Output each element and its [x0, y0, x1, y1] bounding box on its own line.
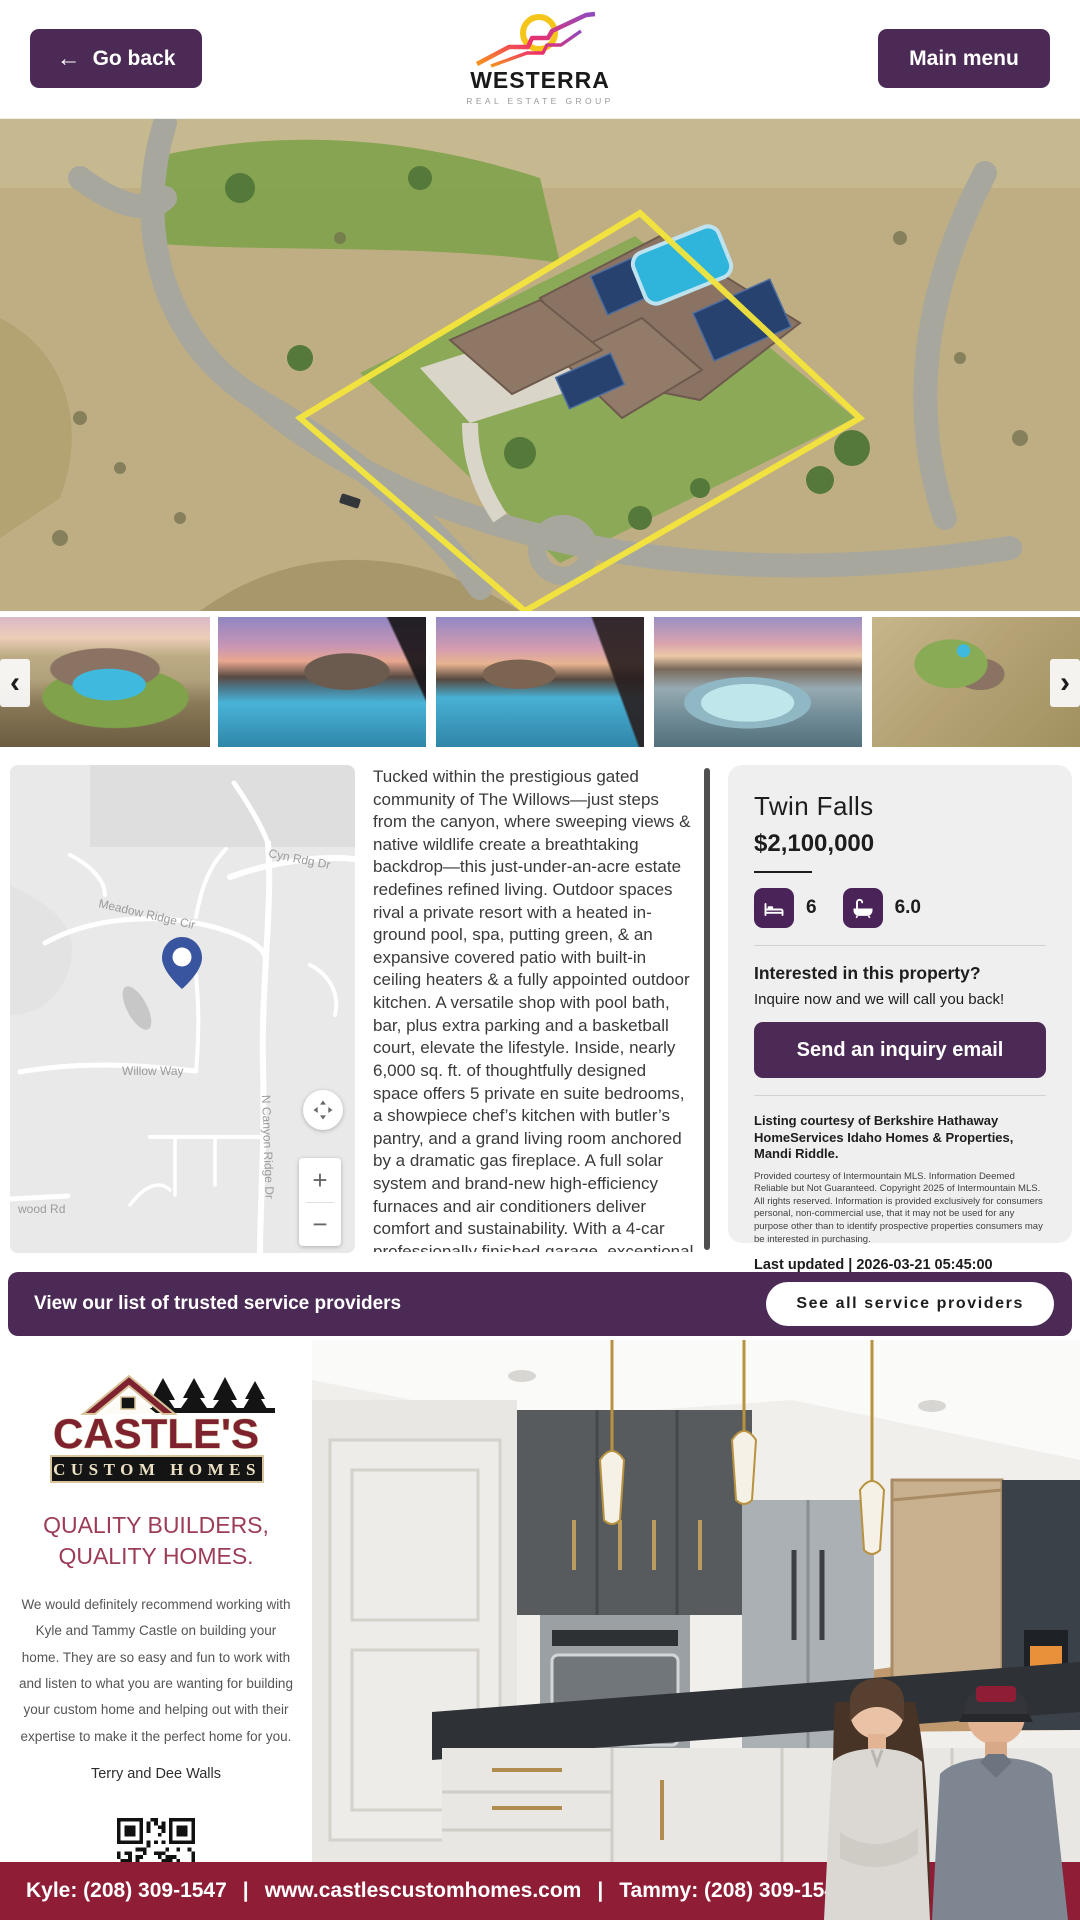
man-figure: [932, 1686, 1068, 1920]
thumbnail-5[interactable]: [872, 617, 1080, 747]
property-info-card: Twin Falls $2,100,000 6 6.0 Interested i…: [728, 765, 1072, 1243]
sponsor-left-column: CASTLE'S CUSTOM HOMES QUALITY BUILDERS, …: [0, 1340, 312, 1862]
see-all-service-providers-button[interactable]: See all service providers: [766, 1282, 1054, 1326]
carousel-prev-button[interactable]: ‹: [0, 659, 30, 707]
street-label-wood-rd: wood Rd: [17, 1202, 65, 1216]
header: ← Go back WESTERRA REAL ESTATE GROUP Mai…: [0, 0, 1080, 119]
tagline-line-1: QUALITY BUILDERS,: [0, 1510, 312, 1541]
property-price: $2,100,000: [754, 830, 1046, 858]
map-zoom-control: + −: [299, 1158, 341, 1246]
listing-courtesy: Listing courtesy of Berkshire Hathaway H…: [754, 1113, 1046, 1163]
main-property-photo: [0, 118, 1080, 611]
chevron-left-icon: ‹: [10, 666, 20, 700]
logo-wordmark: WESTERRA: [470, 67, 610, 93]
property-description: Tucked within the prestigious gated comm…: [373, 766, 695, 1252]
location-map[interactable]: Cyn Rdg Dr Meadow Ridge Cir Willow Way N…: [10, 765, 355, 1253]
bed-icon: [754, 888, 794, 928]
go-back-label: Go back: [93, 47, 176, 71]
service-providers-banner: View our list of trusted service provide…: [8, 1272, 1072, 1336]
pan-arrows-icon: [310, 1097, 336, 1123]
sponsor-owners-photo: [780, 1642, 1080, 1920]
thumbnail-2[interactable]: [218, 617, 426, 747]
footer-website: www.castlescustomhomes.com: [265, 1879, 582, 1903]
interested-heading: Interested in this property?: [754, 963, 1046, 984]
aerial-photo-graphic: [0, 118, 1080, 611]
logo-subtitle: REAL ESTATE GROUP: [466, 96, 613, 106]
thumbnail-4[interactable]: [654, 617, 862, 747]
sponsor-testimonial: We would definitely recommend working wi…: [0, 1592, 312, 1750]
mountain-ridge-icon: [477, 14, 595, 64]
map-pan-control[interactable]: [303, 1090, 343, 1130]
thumbnail-1[interactable]: [0, 617, 210, 747]
last-updated: Last updated | 2026-03-21 05:45:00: [754, 1257, 1046, 1273]
interested-subtext: Inquire now and we will call you back!: [754, 991, 1046, 1008]
feature-row: 6 6.0: [754, 888, 1046, 928]
card-divider: [754, 945, 1046, 946]
go-back-button[interactable]: ← Go back: [30, 29, 202, 88]
bath-icon: [843, 888, 883, 928]
castles-custom-homes-logo: CASTLE'S CUSTOM HOMES: [31, 1366, 281, 1488]
testimonial-attribution: Terry and Dee Walls: [0, 1766, 312, 1782]
property-listing-page: { "header": { "go_back_label": "Go back"…: [0, 0, 1080, 1920]
westerra-logo: WESTERRA REAL ESTATE GROUP: [455, 6, 625, 112]
street-label-willow-way: Willow Way: [122, 1064, 184, 1078]
main-menu-button[interactable]: Main menu: [878, 29, 1050, 88]
footer-kyle-phone: Kyle: (208) 309-1547: [26, 1879, 227, 1903]
property-city: Twin Falls: [754, 791, 1046, 822]
service-banner-text: View our list of trusted service provide…: [34, 1293, 401, 1315]
send-inquiry-button[interactable]: Send an inquiry email: [754, 1022, 1046, 1078]
beds-count: 6: [806, 897, 817, 919]
logo-castles-text: CASTLE'S: [53, 1410, 259, 1457]
logo-custom-homes-text: CUSTOM HOMES: [53, 1460, 261, 1479]
main-menu-label: Main menu: [909, 47, 1019, 71]
chevron-right-icon: ›: [1060, 666, 1070, 700]
map-zoom-out-button[interactable]: −: [299, 1203, 341, 1247]
baths-count: 6.0: [895, 897, 921, 919]
thumbnail-strip: [0, 617, 1080, 747]
price-underline: [754, 871, 812, 873]
map-zoom-in-button[interactable]: +: [299, 1158, 341, 1202]
description-scrollbar[interactable]: [704, 768, 710, 1250]
westerra-logo-graphic: WESTERRA REAL ESTATE GROUP: [455, 6, 625, 112]
back-arrow-icon: ←: [57, 47, 81, 71]
thumbnail-3[interactable]: [436, 617, 644, 747]
footer-separator: |: [597, 1879, 603, 1903]
carousel-next-button[interactable]: ›: [1050, 659, 1080, 707]
tagline-line-2: QUALITY HOMES.: [0, 1541, 312, 1572]
card-divider-2: [754, 1095, 1046, 1096]
mls-disclaimer: Provided courtesy of Intermountain MLS. …: [754, 1171, 1046, 1246]
woman-figure: [824, 1678, 930, 1920]
sponsor-tagline: QUALITY BUILDERS, QUALITY HOMES.: [0, 1510, 312, 1572]
footer-separator: |: [243, 1879, 249, 1903]
